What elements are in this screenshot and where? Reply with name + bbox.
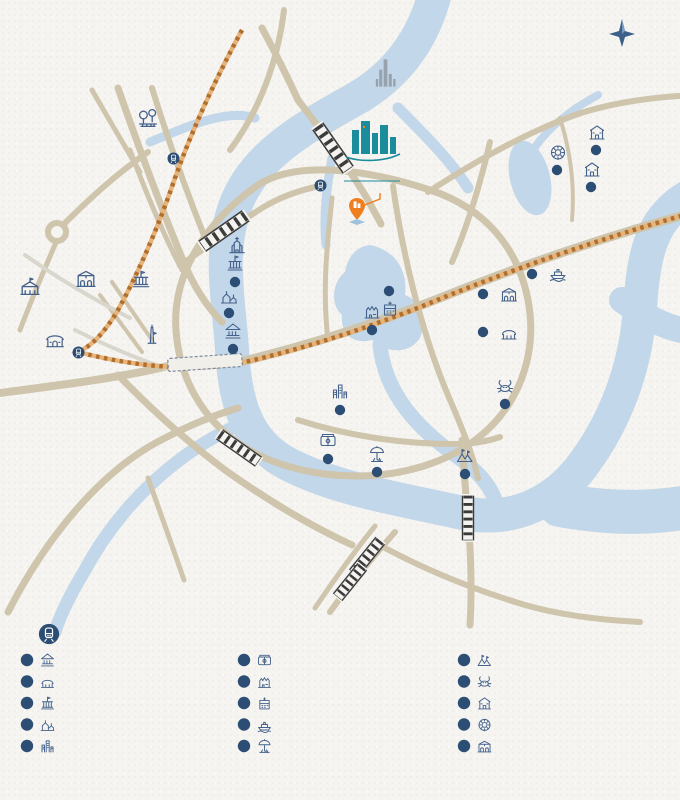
- compass: [609, 19, 635, 47]
- poi-marker-5: [334, 385, 347, 415]
- legend-item-12: [458, 675, 491, 687]
- poi-marker-2: [478, 327, 516, 339]
- legend-item-11: [458, 654, 491, 666]
- poi-marker-9: [527, 269, 565, 282]
- legend: [21, 624, 491, 752]
- river-branch-southeast: [560, 505, 680, 512]
- legend-item-5: [21, 740, 53, 752]
- poi-marker-15: [478, 289, 517, 302]
- poi-marker-14: [552, 146, 565, 175]
- metro-station-icon: [168, 153, 180, 165]
- roundabout: [48, 223, 66, 241]
- legend-item-6: [238, 654, 271, 666]
- metro-station-icon: [73, 347, 85, 359]
- ton-dan-road: [148, 478, 184, 580]
- legend-item-9: [238, 718, 271, 732]
- poi-marker-10: [371, 447, 384, 478]
- map-page: { "compass": {"n":"N","e":"E","s":"S","w…: [0, 0, 680, 800]
- logo-buildings-icon: [346, 121, 400, 160]
- tan-thuan-bridge-2: [332, 562, 368, 602]
- city-map: [0, 0, 680, 800]
- legend-item-8: [238, 697, 269, 709]
- metro-station-icon: [315, 180, 327, 192]
- legend-item-3: [21, 697, 54, 709]
- legend-item-4: [21, 718, 54, 730]
- thu-thiem-bridge-4: [462, 494, 474, 542]
- legend-item-2: [21, 675, 54, 687]
- mai-chi-tho-west: [0, 366, 168, 395]
- metro-legend-icon: [39, 624, 59, 644]
- east-pond: [501, 136, 558, 219]
- legend-item-10: [238, 740, 270, 753]
- legend-item-13: [458, 697, 491, 709]
- committee-icon: [77, 271, 95, 286]
- legend-item-1: [21, 654, 54, 666]
- poi-marker-13b: [585, 163, 599, 192]
- poi-marker-13: [590, 126, 604, 155]
- market-icon: [47, 336, 64, 347]
- huynh-tan-phat-road: [385, 548, 640, 622]
- legend-item-15: [458, 740, 491, 752]
- legend-item-14: [458, 718, 490, 731]
- legend-item-7: [238, 675, 271, 687]
- zoo-icon: [140, 110, 157, 127]
- location-pin-icon: [349, 198, 365, 225]
- poi-marker-6: [321, 435, 335, 465]
